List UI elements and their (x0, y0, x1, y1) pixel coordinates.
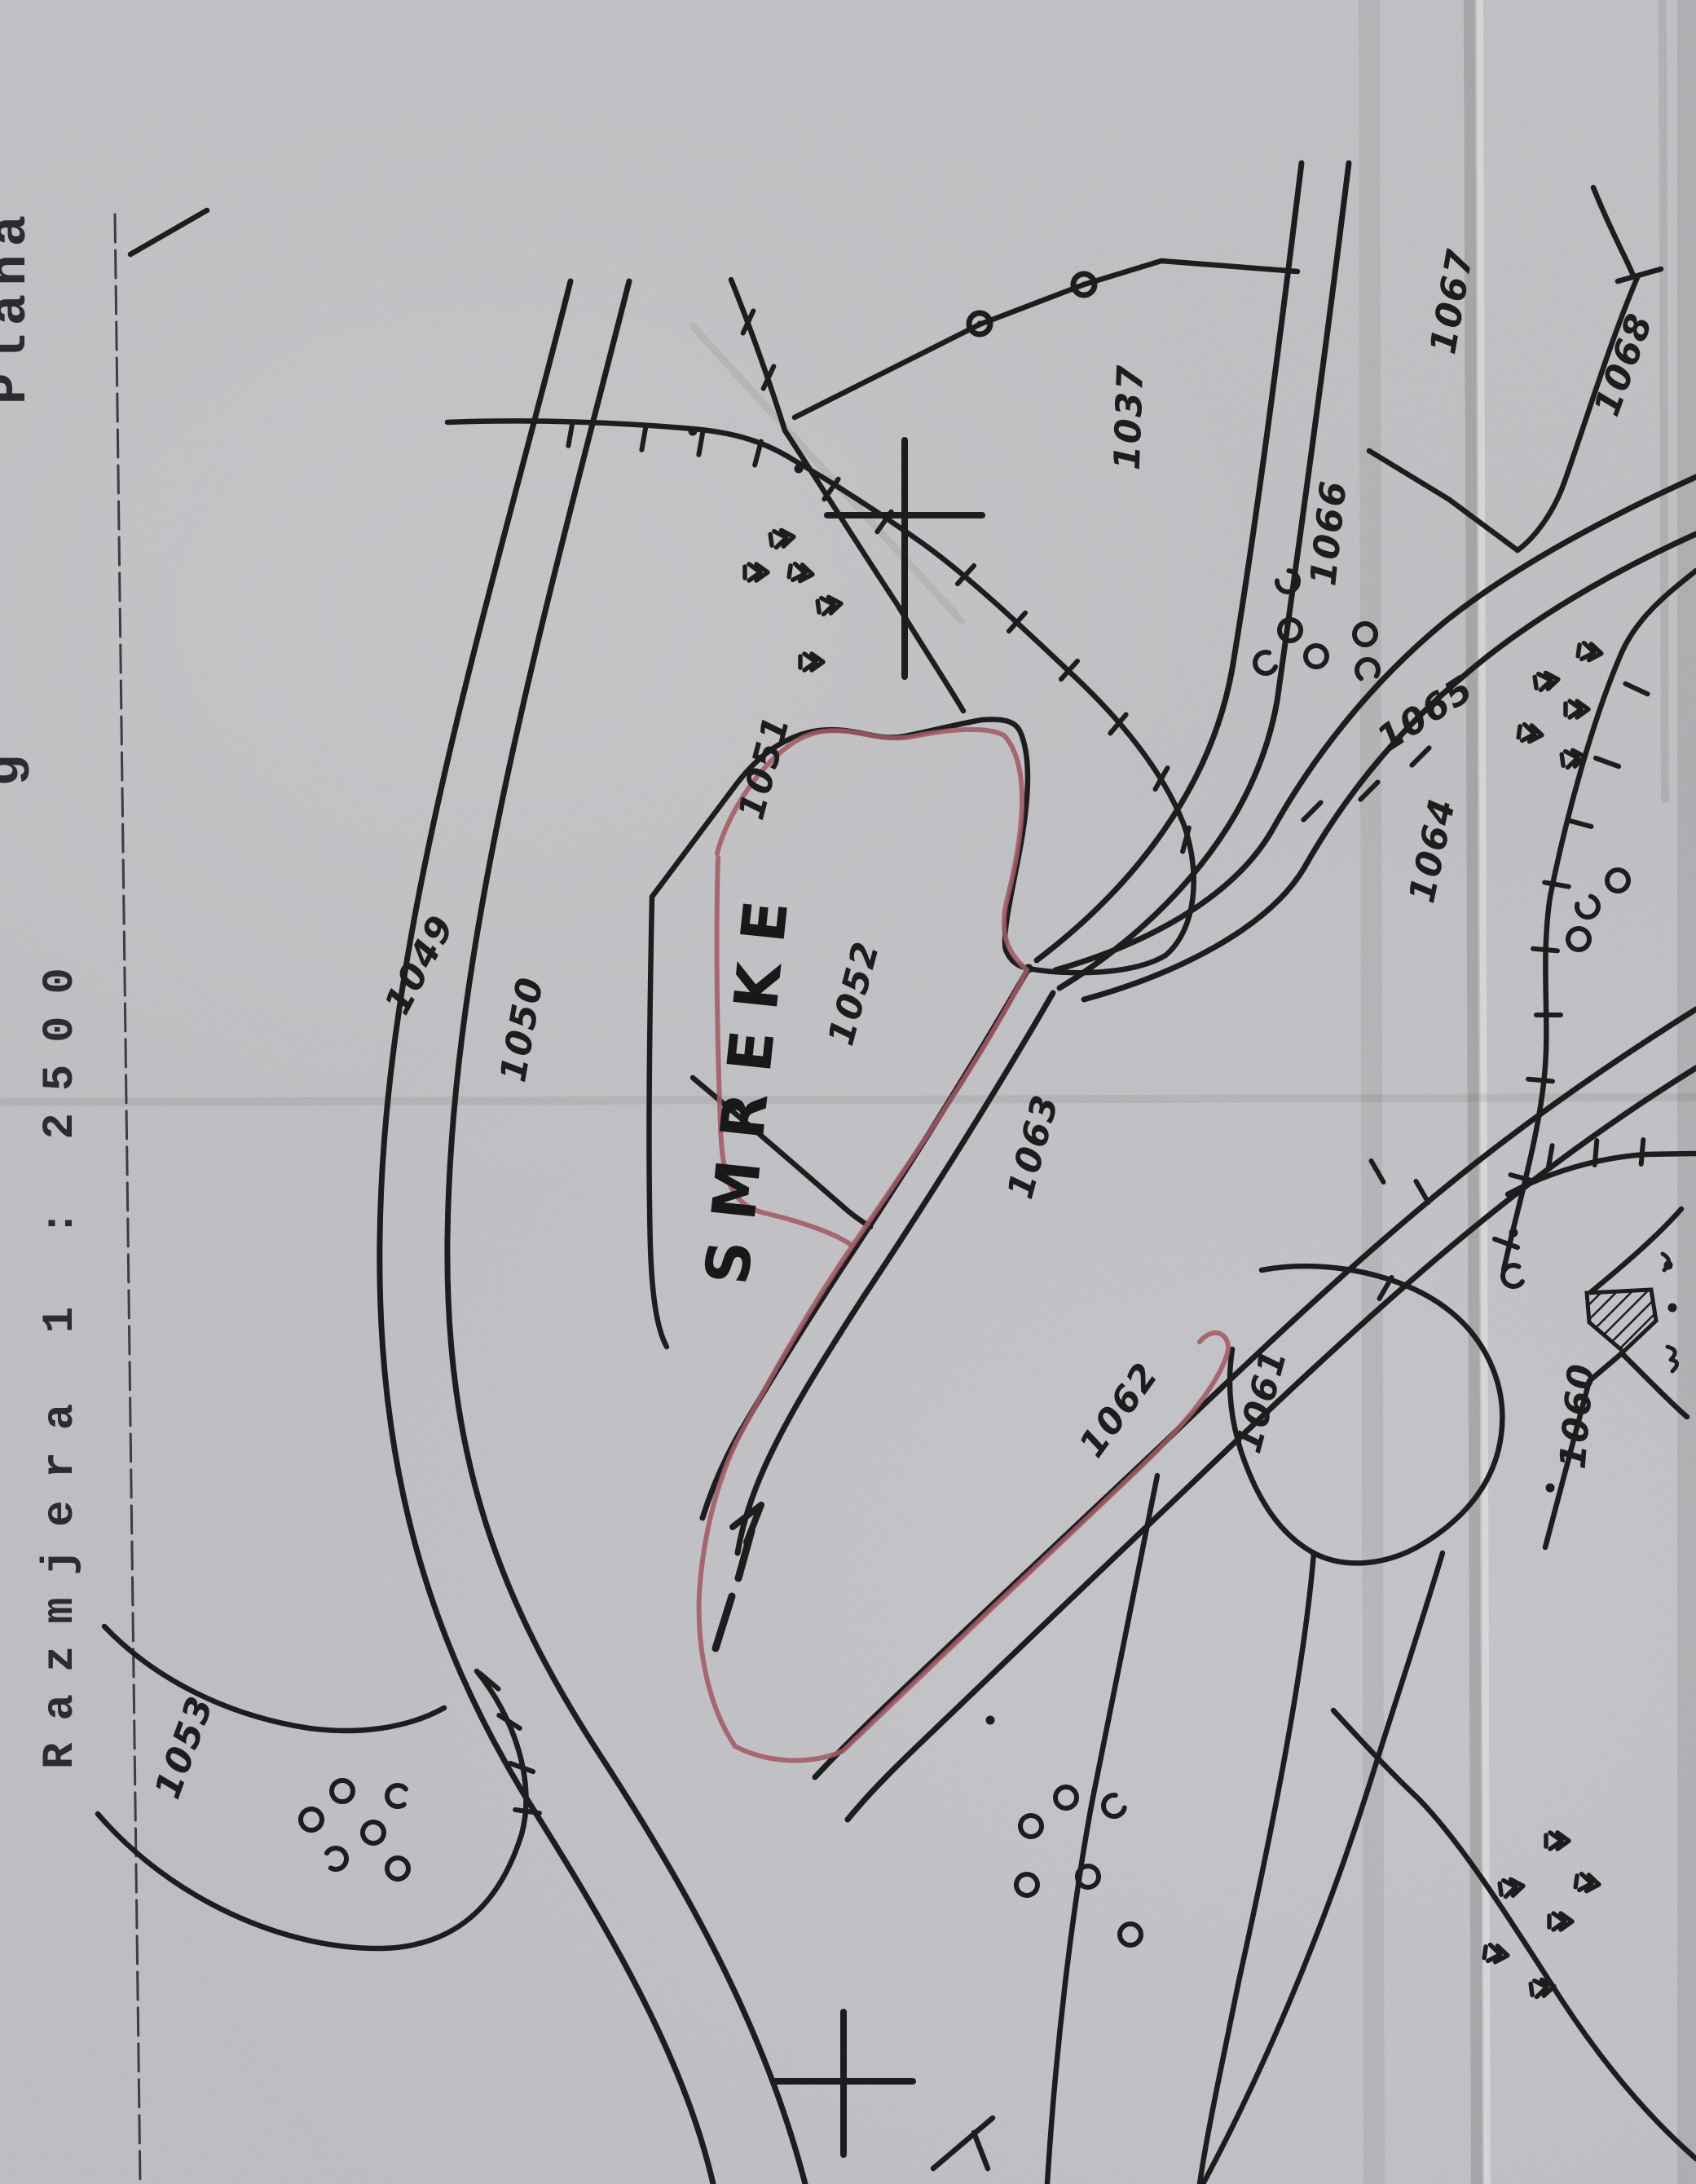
parcel-label: 1037 (1107, 363, 1152, 470)
point-dot (689, 427, 698, 436)
sheet-title-fragment: Plana (0, 207, 41, 404)
tick-mark (1641, 1140, 1644, 1164)
point-dot (1546, 1484, 1555, 1493)
tick-mark (515, 1810, 540, 1813)
point-dot (1509, 1229, 1518, 1238)
point-dot (795, 465, 804, 474)
point-dot (1668, 1304, 1677, 1313)
sheet-title-partial-letter: g (0, 747, 34, 786)
tick-mark (1528, 1079, 1553, 1082)
tick-mark (1595, 1141, 1597, 1165)
map-canvas: 1037104910501051105210531060106110621063… (0, 0, 1696, 2184)
ring-node-center (977, 321, 983, 327)
point-dot (1664, 1261, 1673, 1270)
point-dot (986, 1716, 995, 1725)
scale-label: Razmjera 1 : 2500 (36, 946, 86, 1769)
tick-mark (1533, 949, 1557, 951)
ring-node-center (1081, 282, 1087, 288)
map-sheet: 1037104910501051105210531060106110621063… (0, 0, 1696, 2184)
